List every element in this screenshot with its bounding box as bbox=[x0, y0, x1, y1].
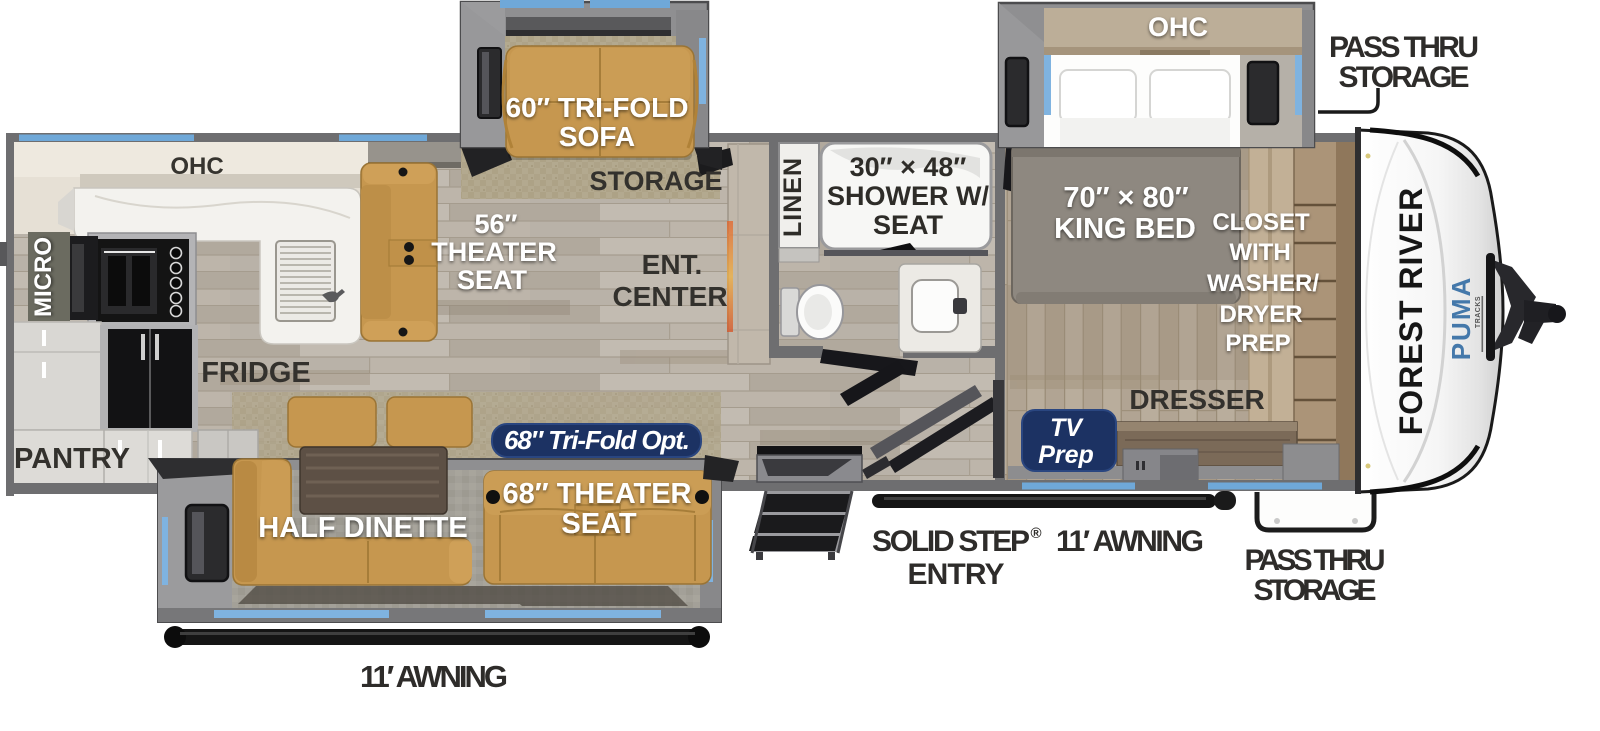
svg-text:CENTER: CENTER bbox=[612, 281, 727, 312]
svg-text:11′ AWNING: 11′ AWNING bbox=[360, 659, 508, 694]
svg-text:SOFA: SOFA bbox=[559, 121, 635, 152]
svg-text:THEATER: THEATER bbox=[431, 237, 557, 267]
svg-text:70″ × 80″: 70″ × 80″ bbox=[1063, 182, 1188, 214]
svg-text:60″ TRI-FOLD: 60″ TRI-FOLD bbox=[506, 92, 689, 123]
svg-text:WITH: WITH bbox=[1229, 239, 1290, 266]
svg-text:KING BED: KING BED bbox=[1054, 213, 1196, 245]
svg-text:®: ® bbox=[1030, 525, 1041, 542]
svg-text:PANTRY: PANTRY bbox=[14, 443, 130, 475]
svg-text:LINEN: LINEN bbox=[779, 157, 807, 237]
svg-text:FOREST RIVER: FOREST RIVER bbox=[1393, 187, 1429, 435]
svg-text:SEAT: SEAT bbox=[873, 210, 944, 240]
svg-text:Prep: Prep bbox=[1038, 441, 1094, 469]
svg-text:SEAT: SEAT bbox=[561, 508, 636, 540]
svg-text:ENT.: ENT. bbox=[642, 249, 703, 280]
svg-text:OHC: OHC bbox=[1148, 12, 1208, 42]
svg-text:STORAGE: STORAGE bbox=[1339, 61, 1470, 94]
svg-text:PASS THRU: PASS THRU bbox=[1245, 544, 1386, 577]
svg-text:30″ × 48″: 30″ × 48″ bbox=[850, 152, 967, 182]
svg-text:68″ Tri-Fold Opt.: 68″ Tri-Fold Opt. bbox=[504, 425, 690, 455]
svg-text:FRIDGE: FRIDGE bbox=[201, 357, 311, 389]
svg-text:SOLID STEP: SOLID STEP bbox=[872, 525, 1030, 558]
svg-text:OHC: OHC bbox=[170, 153, 223, 180]
svg-text:PREP: PREP bbox=[1225, 330, 1290, 357]
svg-text:PUMA: PUMA bbox=[1446, 276, 1476, 361]
svg-text:CLOSET: CLOSET bbox=[1212, 209, 1310, 236]
svg-text:WASHER/: WASHER/ bbox=[1207, 270, 1319, 297]
svg-text:SEAT: SEAT bbox=[457, 265, 528, 295]
svg-text:11′ AWNING: 11′ AWNING bbox=[1056, 525, 1204, 558]
svg-text:MICRO: MICRO bbox=[30, 237, 57, 317]
svg-text:HALF DINETTE: HALF DINETTE bbox=[258, 512, 467, 544]
svg-text:68″ THEATER: 68″ THEATER bbox=[503, 478, 692, 510]
svg-text:DRYER: DRYER bbox=[1219, 301, 1302, 328]
svg-text:56″: 56″ bbox=[475, 209, 518, 239]
svg-text:ENTRY: ENTRY bbox=[908, 558, 1005, 591]
svg-text:PASS THRU: PASS THRU bbox=[1329, 31, 1479, 64]
svg-text:STORAGE: STORAGE bbox=[589, 166, 722, 196]
svg-text:TV: TV bbox=[1050, 414, 1084, 442]
svg-text:STORAGE: STORAGE bbox=[1254, 574, 1377, 607]
svg-text:SHOWER W/: SHOWER W/ bbox=[827, 181, 989, 211]
svg-text:DRESSER: DRESSER bbox=[1129, 384, 1264, 415]
svg-text:TRACKS: TRACKS bbox=[1475, 296, 1482, 328]
